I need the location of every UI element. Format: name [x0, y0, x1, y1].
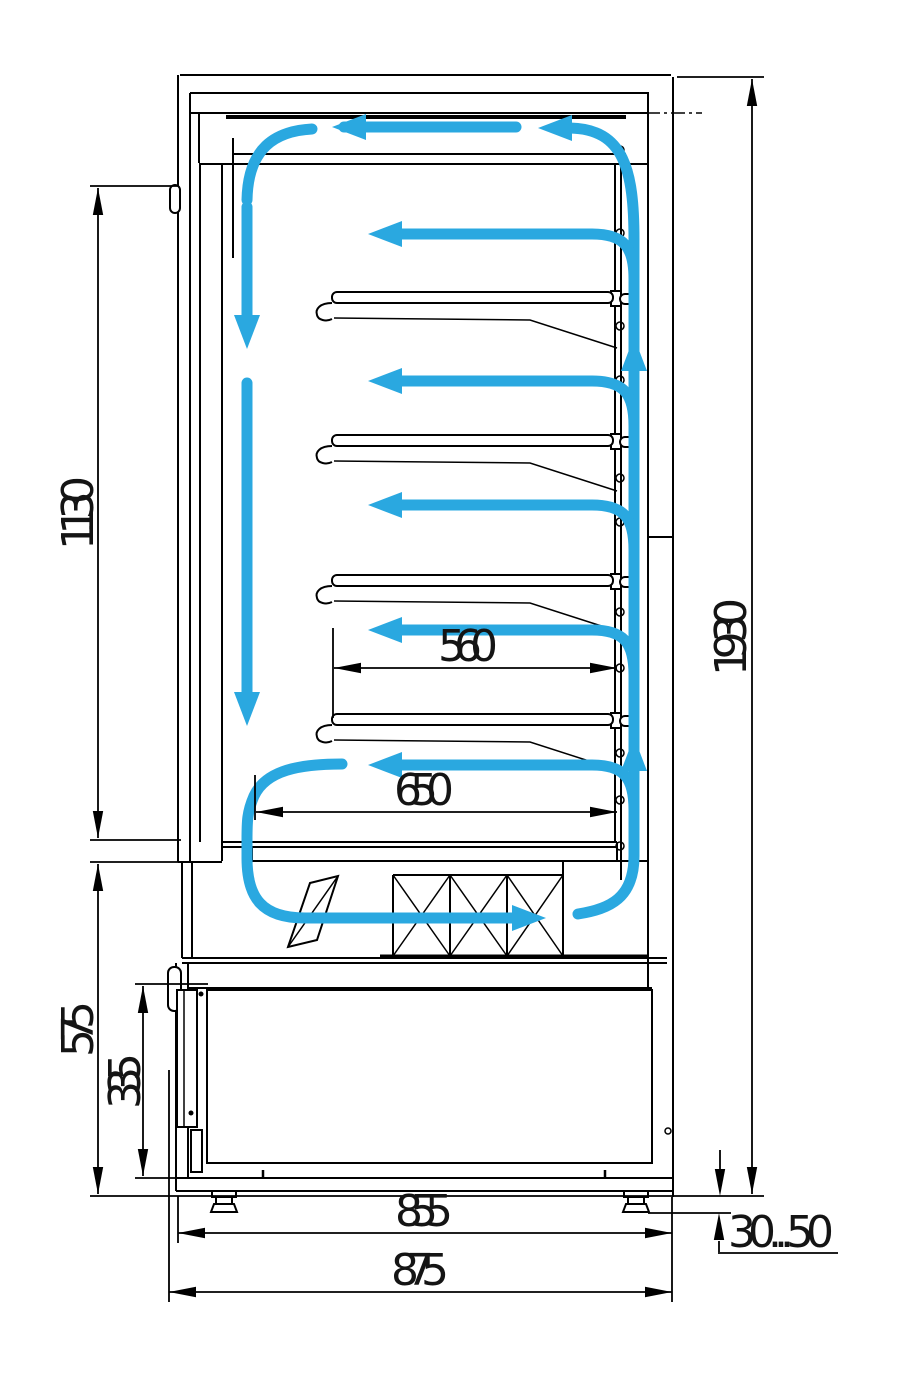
- dim-door-glass-height: 1130: [53, 186, 181, 840]
- airflow-duct-top-curve: [570, 128, 634, 240]
- airflow-arrowhead-down-icon: [234, 315, 260, 349]
- dim-lower-shelf-depth: 650: [255, 765, 617, 820]
- shelf-support-line: [334, 461, 617, 491]
- airflow-arrowhead-up-icon: [621, 337, 647, 371]
- foot-base: [211, 1204, 237, 1212]
- dim-arrow-right-icon: [645, 1287, 672, 1297]
- dim-arrow-right-icon: [590, 807, 617, 817]
- dimensions: 1130 575 335 1930 560: [53, 77, 838, 1302]
- technical-drawing-page: 1130 575 335 1930 560: [0, 0, 900, 1382]
- shelf-board: [332, 714, 613, 725]
- machine-compartment: [168, 963, 672, 1212]
- shelf-board: [332, 575, 613, 586]
- airflow-arrowhead-left-icon: [368, 492, 402, 518]
- shelf-board: [332, 292, 613, 303]
- frame-pins: [263, 1170, 605, 1178]
- dim-arrow-left-icon: [256, 807, 283, 817]
- shelf-front-hook: [317, 586, 332, 603]
- dim-arrow-up-icon: [714, 1213, 724, 1240]
- foot-base: [623, 1204, 649, 1212]
- hinge-pillar: [177, 990, 197, 1127]
- shelf-2: [317, 434, 634, 491]
- airflow-shelf-outlet-2: [402, 381, 634, 426]
- display-case-section-drawing: 1130 575 335 1930 560: [0, 0, 900, 1382]
- airflow-arrowhead-left-icon: [368, 368, 402, 394]
- hinge-lower-bracket: [191, 1130, 202, 1172]
- hinge-bolt: [189, 1111, 194, 1116]
- dim-label-335: 335: [100, 1053, 151, 1109]
- door-top-hinge-knuckle: [170, 185, 180, 213]
- deck-lines: [222, 842, 648, 861]
- airflow-arrowhead-left-icon: [368, 221, 402, 247]
- foot-stem: [216, 1197, 232, 1204]
- airflow-shelf-outlet-1: [402, 234, 634, 279]
- dim-arrow-down-icon: [93, 811, 103, 838]
- dim-label-650: 650: [394, 765, 454, 816]
- side-bolt: [665, 1128, 671, 1134]
- shelf-front-hook: [317, 446, 332, 463]
- dim-label-875: 875: [391, 1245, 449, 1296]
- compartment-door-panel: [207, 990, 652, 1163]
- adjustable-foot-right: [623, 1191, 649, 1212]
- hinge-bolt: [199, 992, 204, 997]
- dim-shelf-clearance-depth: 560: [333, 621, 617, 718]
- display-deck: [222, 842, 648, 861]
- foot-stem: [628, 1197, 644, 1204]
- dim-label-30-50: 30...50: [728, 1207, 834, 1258]
- front-glass-door: [170, 75, 222, 862]
- dim-arrow-down-icon: [93, 1167, 103, 1194]
- compartment-lines: [176, 963, 672, 1191]
- dim-label-1130: 1130: [53, 476, 104, 550]
- dim-label-855: 855: [395, 1186, 453, 1237]
- dim-label-560: 560: [438, 621, 498, 672]
- dim-arrow-left-icon: [169, 1287, 196, 1297]
- shelf-front-hook: [317, 303, 332, 320]
- shelf-front-hook: [317, 725, 332, 742]
- dim-arrow-right-icon: [590, 663, 617, 673]
- dim-arrow-down-icon: [715, 1169, 725, 1196]
- shelf-board: [332, 435, 613, 446]
- dim-overall-height: 1930: [677, 77, 764, 1194]
- dim-arrow-right-icon: [645, 1228, 672, 1238]
- airflow-shelf-outlet-3: [402, 505, 634, 550]
- front-frame-lines: [178, 75, 222, 862]
- dim-label-1930: 1930: [706, 598, 757, 676]
- dim-arrow-up-icon: [93, 188, 103, 215]
- dim-arrow-up-icon: [93, 864, 103, 891]
- dim-arrow-up-icon: [747, 79, 757, 106]
- airflow-arrowhead-down-icon: [234, 692, 260, 726]
- airflow-arrowhead-right-icon: [512, 905, 546, 931]
- airflow-arrowhead-up-icon: [621, 737, 647, 771]
- shelf-1: [317, 291, 634, 348]
- dim-arrow-down-icon: [747, 1167, 757, 1194]
- shelf-support-line: [334, 318, 617, 348]
- airflow-arrowhead-left-icon: [368, 617, 402, 643]
- dim-arrow-left-icon: [334, 663, 361, 673]
- air-damper-flap: [288, 876, 338, 947]
- dim-arrow-down-icon: [138, 1149, 148, 1176]
- adjustable-foot-left: [211, 1191, 237, 1212]
- dim-arrow-up-icon: [138, 986, 148, 1013]
- door-hinge-pillar: [168, 967, 204, 1172]
- dim-arrow-left-icon: [178, 1228, 205, 1238]
- dim-label-575: 575: [53, 1001, 104, 1057]
- shelves: [317, 291, 634, 770]
- dim-leg-adjustment: 30...50: [648, 1150, 838, 1258]
